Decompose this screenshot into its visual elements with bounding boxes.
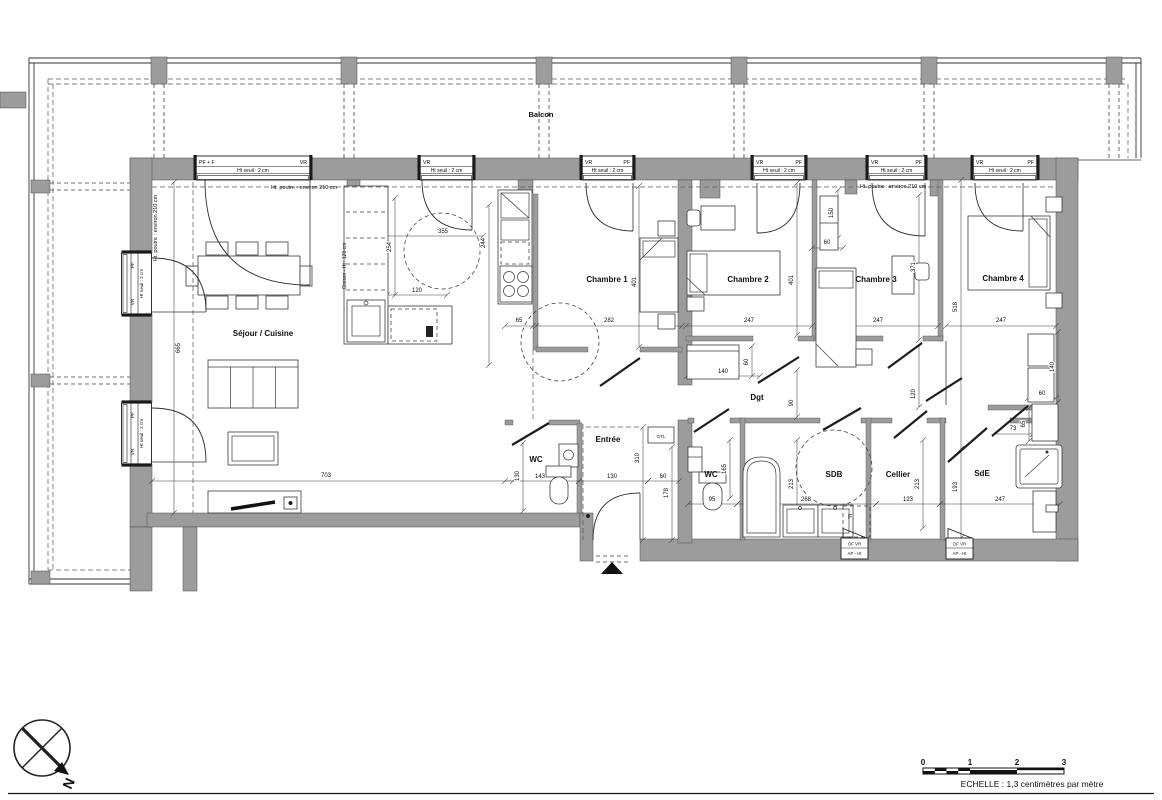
washbasin-wc-2 [688,447,702,472]
door-leaf [512,423,549,445]
dimension-label: 95 [709,497,716,503]
dimension-label: 282 [604,318,615,324]
room-label-sdb: SDB [826,470,843,479]
scale-tick: 2 [1015,758,1020,767]
annotation-poutre-2: Ht. poutre : environ 210 cm [860,184,927,190]
scale-tick: 0 [921,758,926,767]
door-leaf [894,411,927,438]
closet-chambre-2 [687,345,739,379]
tv-bench [208,491,301,513]
dimension-label: 254 [387,241,393,252]
dimension-label: 150 [829,207,835,218]
coffee-table [228,432,278,465]
door-leaf [694,409,729,432]
washbasin-wc-1 [559,444,578,467]
dimension-label: 130 [515,470,521,481]
dimension-label: 90 [789,399,795,406]
dimension-label: 123 [903,497,914,503]
door-leaf [888,343,922,368]
floor-plan-sheet: PF + FVRHt seuil : 2 cmVRHt seuil : 2 cm… [0,0,1162,800]
dimension-label: 247 [995,497,1006,503]
door-leaf [948,428,987,462]
room-label-chambre-3: Chambre 3 [855,275,897,284]
balcony-railing [0,57,1141,584]
window-sill-label: Ht seuil : 2 cm [989,168,1021,174]
window-top-2: VRHt seuil : 2 cm [418,155,476,180]
window-type-label: PF + F [199,160,215,166]
compass-needle [22,728,60,766]
window-left-1: PFHt seuil : 2 cmVR [122,250,152,316]
entrance-arrow [601,562,623,574]
door-arc [152,408,206,462]
dimension-label: 518 [953,301,959,312]
window-type-label: OF VR [848,542,861,547]
window-top-6: VRPFHt seuil : 2 cm [971,155,1040,180]
room-label-dgt: Dgt [750,393,764,402]
dimension-label: 665 [176,342,182,353]
balcony-posts [0,57,1122,584]
annotation-gtl: GTL [657,434,666,439]
door-arc [872,183,925,236]
dimension-label: 703 [321,473,332,479]
dimension-label: 143 [535,474,546,480]
window-type-label: PF [915,160,922,166]
entry-door-arc [593,493,640,540]
scale-bar: ECHELLE : 1,3 centimètres par mètre 0123 [921,758,1104,789]
dimension-label: 213 [789,478,795,489]
dimension-label: 60 [660,474,667,480]
dimension-label: 60 [1039,391,1046,397]
window-top-1: PF + FVRHt seuil : 2 cm [194,155,313,180]
dimension-label: 244 [481,237,487,248]
dimension-label: 355 [438,229,449,235]
window-type-label: OF VR [953,542,966,547]
room-label-chambre-1: Chambre 1 [586,275,628,284]
window-type-label: PF [623,160,630,166]
turning-circle [404,213,480,289]
door-arc [422,180,472,230]
cabinet-sde [1032,404,1058,441]
dimension-label: 213 [915,478,921,489]
dimension-label: 193 [953,481,959,492]
window-type-label: VR [585,160,592,166]
window-type-label: PF [795,160,802,166]
room-label-balcon: Balcon [528,110,553,119]
room-label-chambre-4: Chambre 4 [982,274,1024,283]
shower-sde [1016,445,1062,488]
dimension-label: 140 [1050,361,1056,372]
kitchen-stove [500,266,532,302]
kitchen-sink [347,300,385,342]
window-top-3: VRPFHt seuil : 2 cm [580,155,636,180]
dimension-label: 178 [664,487,670,498]
dimension-label: 60 [744,358,750,365]
washbasin-sde [1033,491,1058,532]
vanity-sdb [783,505,870,537]
window-sill-label: Ht seuil : 2 cm [237,168,269,174]
dimension-label: 165 [722,463,728,474]
floor-plan-drawing: PF + FVRHt seuil : 2 cmVRHt seuil : 2 cm… [0,0,1162,800]
dimension-label: 130 [607,474,618,480]
window-sill-label: AP - Ht [953,551,968,556]
window-bottom-2: OF VRAP - Ht [946,529,973,560]
dimension-label: 120 [412,288,423,294]
dimension-label: 140 [718,369,729,375]
window-type-label: VR [756,160,763,166]
dimension-label: 371 [911,261,917,272]
window-sill-label: Ht seuil : 2 cm [881,168,913,174]
dimension-label: 247 [996,318,1007,324]
sofa [208,360,298,408]
compass-rose: N [14,720,78,792]
dimension-label: 268 [801,497,812,503]
balcony-post-guides [50,84,1119,384]
north-label: N [59,776,78,792]
window-type-label: PF [130,262,136,268]
toilet-wc-1 [546,466,571,504]
dimension-label: 401 [789,274,795,285]
window-type-label: VR [423,160,430,166]
dimension-label: 401 [632,276,638,287]
scale-tick: 1 [968,758,973,767]
door-arc [757,183,800,233]
annotation-cloison: Cloison - Ht : 120 cm [342,243,348,290]
dimension-label: 73 [1010,426,1017,432]
window-type-label: VR [871,160,878,166]
window-sill-label: Ht seuil : 2 cm [139,269,144,298]
room-label-cellier: Cellier [886,470,910,479]
bed-chambre-1 [640,221,678,329]
window-sill-label: Ht seuil : 2 cm [139,419,144,448]
dimension-label: 65 [1021,420,1027,427]
turning-circle [796,430,872,506]
window-sill-label: Ht seuil : 2 cm [592,168,624,174]
dimension-label: 120 [911,388,917,399]
room-label-wc-1: WC [529,455,543,464]
room-label-wc-2: WC [704,470,718,479]
bathtub-sdb [743,457,780,537]
annotation-f-box: F [848,514,852,521]
window-top-4: VRPFHt seuil : 2 cm [751,155,808,180]
annotation-poutre-1: Ht. poutre : environ 210 cm [271,185,338,191]
room-label-chambre-2: Chambre 2 [727,275,769,284]
window-type-label: VR [976,160,983,166]
window-type-label: VR [300,160,307,166]
window-type-label: PF [130,412,136,418]
window-type-label: VR [130,298,136,305]
window-top-5: VRPFHt seuil : 2 cm [866,155,928,180]
window-type-label: PF [1027,160,1034,166]
door-leaf [758,357,799,383]
window-sill-label: Ht seuil : 2 cm [763,168,795,174]
window-sill-label: Ht seuil : 2 cm [431,168,463,174]
dimension-label: 247 [744,318,755,324]
annotation-poutre-3: Ht. poutre : environ 210 cm [153,194,159,261]
room-label-sde: SdE [974,469,990,478]
scale-caption: ECHELLE : 1,3 centimètres par mètre [961,779,1104,789]
dimension-label: 65 [516,318,523,324]
desk-chambre-3 [892,256,929,294]
room-label-sejour-cuisine: Séjour / Cuisine [233,329,294,338]
door-leaf [926,378,962,401]
room-label-entree: Entrée [596,435,621,444]
dimension-label: 310 [635,452,641,463]
window-left-2: PFHt seuil : 2 cmVR [122,400,152,466]
door-arc [586,183,633,231]
furniture [186,186,1062,537]
desk-chambre-2 [687,206,735,230]
door-leaf [823,408,861,430]
entry-door-handle [586,514,590,518]
window-sill-label: AP - Ht [848,551,863,556]
scale-tick: 3 [1062,758,1067,767]
dimension-label: 60 [824,240,831,246]
window-type-label: VR [130,448,136,455]
dimension-label: 247 [873,318,884,324]
door-leaf [600,358,640,386]
